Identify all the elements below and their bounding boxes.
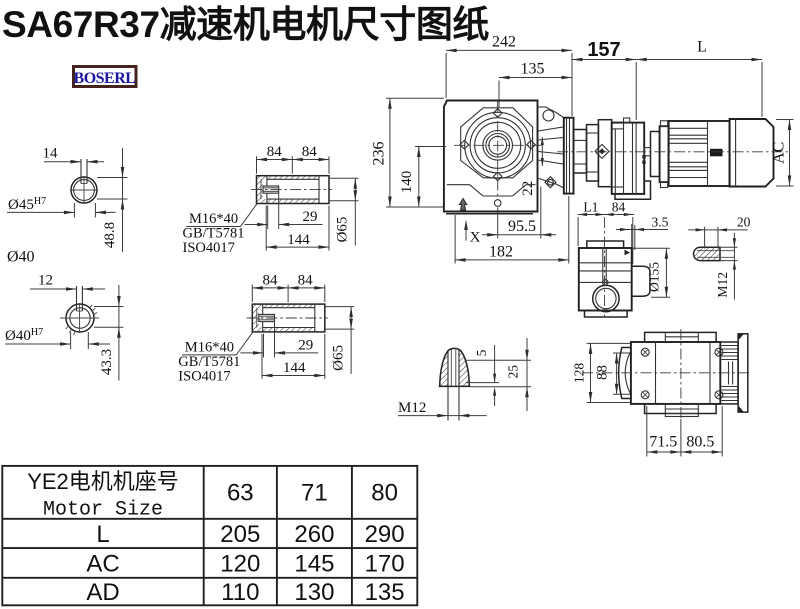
svg-text:63: 63 (227, 480, 254, 507)
svg-text:84: 84 (267, 144, 283, 160)
svg-text:AC: AC (86, 551, 119, 578)
svg-text:260: 260 (294, 521, 334, 548)
svg-text:SA67R37减速机电机尺寸图纸: SA67R37减速机电机尺寸图纸 (2, 4, 489, 45)
svg-text:25: 25 (506, 365, 521, 379)
svg-text:X: X (470, 230, 481, 246)
svg-text:22: 22 (520, 181, 536, 196)
svg-text:Ø65: Ø65 (330, 345, 346, 371)
svg-text:236: 236 (371, 142, 388, 166)
svg-text:Ø40: Ø40 (7, 249, 35, 266)
svg-text:80.5: 80.5 (686, 434, 714, 451)
svg-text:71: 71 (301, 480, 328, 507)
svg-text:29: 29 (298, 338, 313, 354)
svg-text:242: 242 (492, 34, 516, 51)
svg-text:140: 140 (399, 171, 415, 194)
svg-text:M12: M12 (398, 400, 426, 416)
svg-text:ISO4017: ISO4017 (183, 240, 235, 256)
svg-text:182: 182 (489, 244, 513, 261)
svg-text:80: 80 (371, 480, 398, 507)
svg-text:L: L (697, 39, 707, 56)
svg-text:135: 135 (521, 61, 545, 78)
svg-text:YE2电机机座号: YE2电机机座号 (27, 469, 179, 494)
svg-text:84: 84 (302, 144, 318, 160)
svg-text:71.5: 71.5 (649, 434, 677, 451)
svg-text:Ø65: Ø65 (335, 217, 351, 243)
svg-text:Motor Size: Motor Size (43, 499, 163, 522)
svg-text:130: 130 (294, 579, 334, 606)
svg-text:157: 157 (587, 39, 620, 61)
svg-text:84: 84 (298, 272, 314, 288)
svg-text:135: 135 (365, 579, 405, 606)
svg-text:M12: M12 (715, 272, 730, 298)
svg-text:205: 205 (220, 521, 260, 548)
svg-text:L1: L1 (583, 200, 598, 215)
svg-text:170: 170 (365, 551, 405, 578)
svg-text:145: 145 (294, 551, 334, 578)
svg-text:AC: AC (771, 142, 788, 164)
svg-text:29: 29 (303, 209, 318, 225)
svg-text:ISO4017: ISO4017 (178, 368, 230, 384)
svg-text:AD: AD (86, 579, 119, 606)
svg-text:290: 290 (365, 521, 405, 548)
svg-text:120: 120 (220, 551, 260, 578)
svg-text:Ø155: Ø155 (647, 262, 662, 292)
svg-text:144: 144 (283, 360, 306, 376)
svg-text:95.5: 95.5 (508, 218, 536, 235)
svg-text:84: 84 (612, 200, 626, 215)
svg-text:20: 20 (737, 215, 751, 230)
svg-text:110: 110 (221, 579, 259, 606)
svg-text:43.3: 43.3 (99, 349, 115, 375)
svg-text:5: 5 (474, 349, 489, 356)
svg-text:48.8: 48.8 (102, 222, 118, 248)
svg-text:14: 14 (43, 146, 59, 162)
svg-text:144: 144 (287, 232, 310, 248)
svg-text:BOSERL: BOSERL (74, 70, 136, 87)
svg-text:84: 84 (263, 272, 279, 288)
svg-text:3.5: 3.5 (651, 215, 668, 230)
svg-text:L: L (96, 521, 109, 548)
svg-text:12: 12 (38, 273, 53, 289)
